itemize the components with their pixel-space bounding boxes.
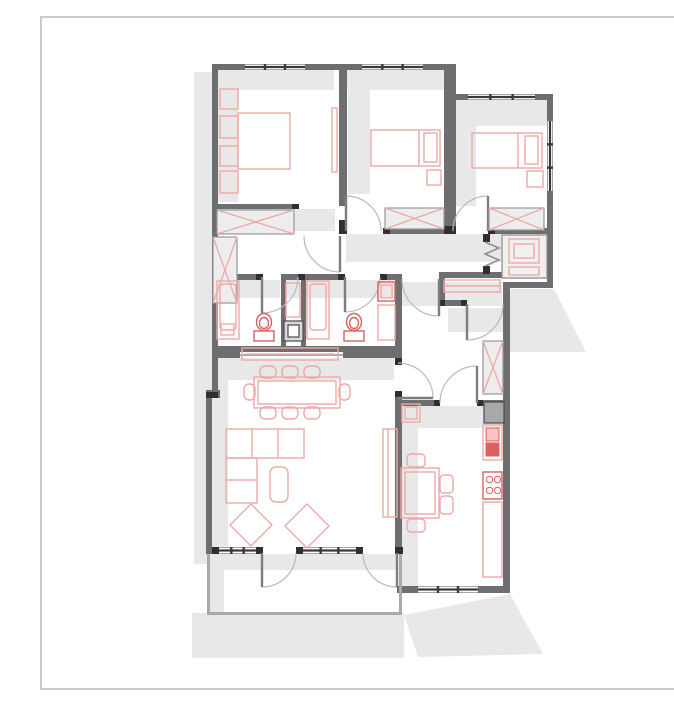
wall-bed2-bed3 (444, 64, 456, 234)
kitchen-burner-4 (494, 487, 500, 493)
wall-left-lower (206, 394, 212, 554)
window-kitchen-edge-b (418, 592, 478, 593)
window-bed3-top-edge-b (468, 99, 535, 100)
kitchen-sink-basin (486, 428, 499, 441)
kitchen-fridge (484, 402, 504, 423)
shadow-bed1-left (218, 70, 238, 202)
window-bed2-edge-b (362, 69, 423, 70)
ext-shadow-below-balcony (192, 613, 404, 658)
window-bed3-right-edge-a (547, 121, 548, 191)
shadow-balcony-left (210, 554, 224, 612)
window-living-b-tick-b (337, 547, 339, 554)
window-bed2 (362, 64, 423, 70)
window-living-a-edge-a (219, 547, 256, 548)
cap-left-jog (206, 392, 218, 398)
window-bed2-glass (362, 66, 423, 68)
wardrobe-bed2-xbox (385, 208, 444, 229)
window-living-a-tick-a (230, 547, 232, 554)
window-bed3-right-edge-b (552, 121, 553, 191)
window-bed1 (245, 64, 305, 70)
cap-bed1-wall-end (292, 204, 299, 209)
window-bed3-top (468, 94, 535, 100)
cap-balcdoor-d (395, 547, 403, 554)
balcony-door-gap-left (263, 547, 296, 554)
cap-kitchen-jamb-l (434, 400, 440, 406)
window-living-b-edge-b (303, 553, 356, 554)
window-bed3-right (547, 121, 553, 191)
wall-entry-step (503, 282, 553, 288)
wall-hall-console (439, 272, 503, 278)
window-bed3-right-tick-a (547, 143, 553, 145)
wall-bath-east (395, 274, 402, 352)
cap-midwall-end (444, 226, 456, 234)
window-kitchen-glass (418, 588, 478, 590)
cap-vestibule-stub-b (483, 266, 490, 274)
wall-right-mid (503, 282, 510, 406)
cabinet-hall-xbox (483, 341, 503, 394)
window-living-a-edge-b (219, 553, 256, 554)
wall-balcony-right (399, 554, 402, 615)
wardrobe-bed3-xbox (489, 208, 544, 230)
kitchen-stove-block (486, 443, 499, 456)
window-bed2-tick-a (381, 64, 383, 70)
kitchen-burner-1 (486, 476, 492, 482)
window-bed2-edge-a (362, 64, 423, 65)
shadow-hall-entry (448, 308, 503, 332)
kitchen-burner-2 (494, 476, 500, 482)
closet-bed1-xbox (217, 210, 294, 234)
window-bed3-right-tick-b (547, 166, 553, 168)
cap-bath1-jamb-r (298, 274, 305, 280)
cap-balcdoor-c (356, 547, 363, 554)
wall-balcony-bottom (207, 612, 402, 615)
wall-bath-bottom (212, 346, 402, 352)
cap-livbottom-l (212, 547, 219, 554)
window-living-b-tick-a (319, 547, 321, 554)
wall-living-top-b (343, 352, 402, 358)
cap-livhall-jamb-t (395, 358, 402, 365)
window-kitchen-tick-a (437, 586, 439, 593)
window-living-a (219, 547, 256, 554)
balcony-door-gap-right (363, 547, 397, 554)
wall-living-top-a (212, 352, 240, 358)
duct-inner (288, 325, 299, 337)
window-bed3-right-glass (549, 121, 551, 191)
wall-bed1-bed2 (339, 70, 347, 206)
wall-kitchen-right (503, 406, 510, 593)
cap-livhall-jamb-b (395, 391, 402, 397)
window-bed3-top-glass (468, 96, 535, 98)
shadow-bed3-left (456, 100, 476, 206)
shadow-bed2-left (348, 70, 370, 194)
window-bed1-glass (245, 66, 305, 68)
wall-kitchen-top-a (397, 400, 440, 406)
cap-vestibule-stub-a (483, 234, 490, 242)
wall-bed1-bottom (212, 204, 298, 209)
window-bed1-edge-b (245, 69, 305, 70)
floor-plan-figure (40, 16, 674, 690)
window-kitchen-tick-b (457, 586, 459, 593)
window-bed1-edge-a (245, 64, 305, 65)
shadow-balcony-top (210, 554, 398, 570)
window-living-b-glass (303, 549, 356, 551)
window-kitchen (418, 586, 478, 593)
window-living-b-edge-a (303, 547, 356, 548)
window-bed2-tick-b (401, 64, 403, 70)
cap-balcdoor-b (296, 547, 303, 554)
window-living-a-tick-b (242, 547, 244, 554)
window-living-b (303, 547, 356, 554)
wall-balcony-left (207, 554, 210, 615)
window-bed1-tick-b (284, 64, 286, 70)
window-kitchen-edge-a (418, 586, 478, 587)
window-bed3-top-tick-a (489, 94, 491, 100)
window-bed3-top-edge-a (468, 94, 535, 95)
cap-bath2-jamb-r (380, 274, 387, 280)
window-living-a-glass (219, 549, 256, 551)
shadow-corridor-east (346, 234, 503, 262)
window-bed3-top-tick-b (511, 94, 513, 100)
floor-plan-canvas (40, 16, 674, 690)
window-bed1-tick-a (264, 64, 266, 70)
kitchen-burner-3 (486, 487, 492, 493)
cap-balcdoor-a (256, 547, 263, 554)
